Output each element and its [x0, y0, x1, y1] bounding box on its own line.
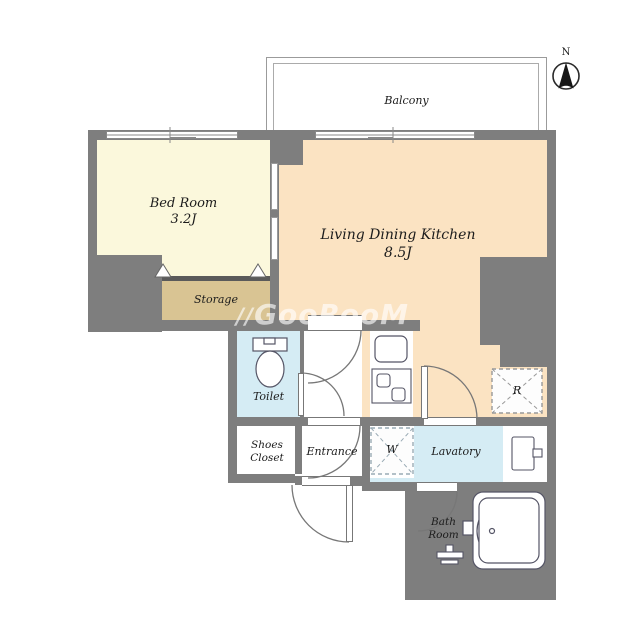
balcony-label: Balcony: [266, 94, 547, 108]
watermark-icon: //: [236, 305, 254, 330]
floor-plan: Balcony N Bed Room3.2J Living Dining Kit…: [0, 0, 640, 640]
north-arrow-icon: [553, 63, 579, 90]
lavatory-label: Lavatory: [396, 445, 516, 459]
compass-north-label: N: [558, 47, 574, 60]
window-glazing-lines: [106, 127, 475, 143]
stove-icon: [372, 369, 411, 403]
shoes-closet-label: ShoesCloset: [238, 439, 296, 465]
toilet-icon: [253, 338, 287, 387]
toilet-label: Toilet: [237, 390, 300, 404]
refrigerator-label: R: [492, 384, 542, 398]
watermark: //GooRooM: [236, 298, 409, 331]
washbasin-icon: [512, 437, 542, 470]
folding-door-triangle-icon: [155, 264, 266, 277]
bedroom-label: Bed Room3.2J: [97, 196, 270, 229]
kitchen-sink-icon: [375, 336, 407, 362]
ldk-label: Living Dining Kitchen8.5J: [278, 227, 518, 262]
shower-faucet-icon: [437, 545, 463, 564]
bathtub-icon: [463, 492, 545, 569]
entrance-label: Entrance: [302, 445, 362, 459]
bathroom-label: BathRoom: [415, 516, 472, 542]
